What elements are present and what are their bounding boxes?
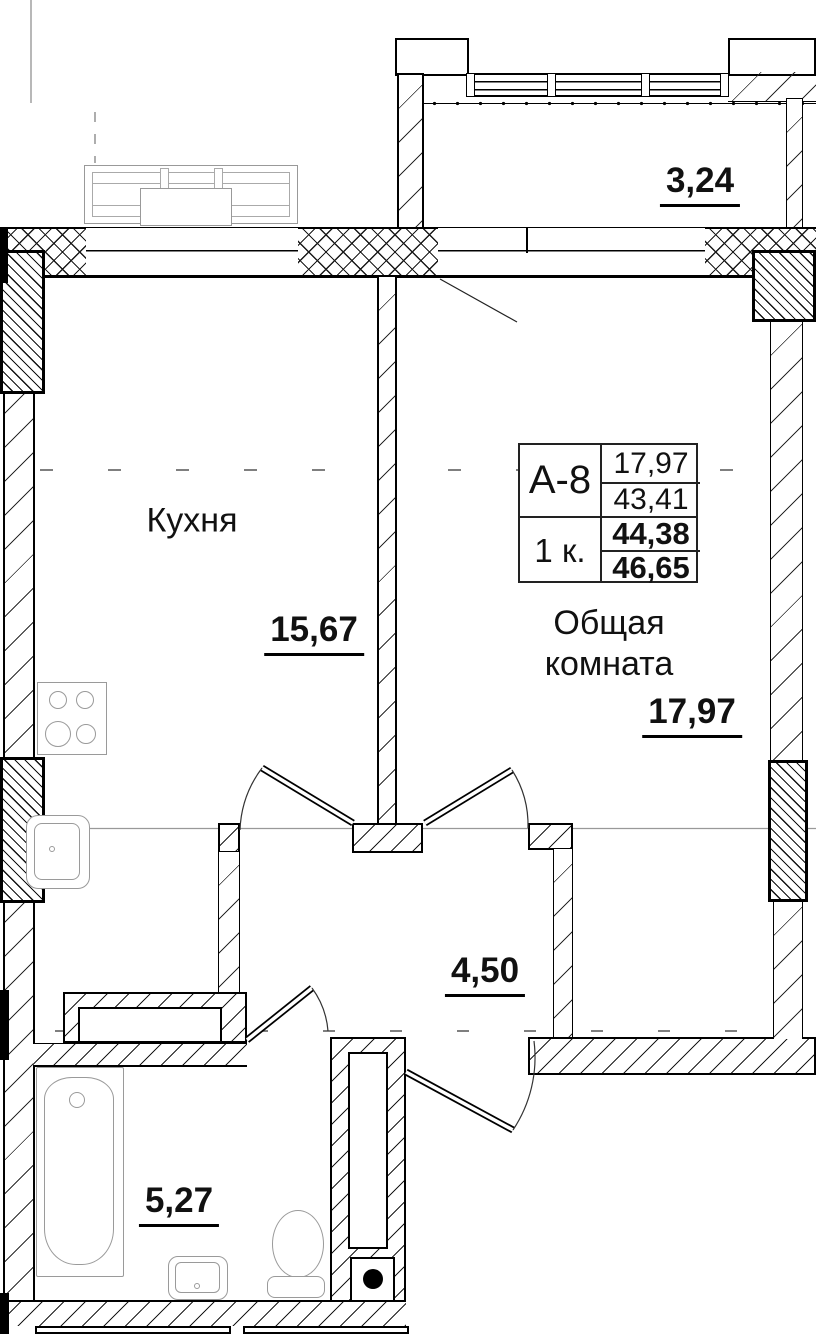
balcony-railing <box>469 73 728 97</box>
living-room-area-label: 17,97 <box>642 692 742 738</box>
wall-right-exterior-upper <box>770 322 803 762</box>
bathroom-area-label: 5,27 <box>139 1181 219 1227</box>
kitchen-sink <box>26 815 90 889</box>
unit-type: 1 к. <box>520 516 600 585</box>
area-value-2: 43,41 <box>602 483 700 516</box>
kitchen-sink-bowl <box>34 823 80 880</box>
balcony-pillar-right <box>728 38 816 76</box>
pier-right-middle <box>768 760 808 902</box>
hallway-area-label: 4,50 <box>445 951 525 997</box>
living-room-door-leaf-inner <box>425 770 512 823</box>
info-table: А-8 1 к. 17,97 43,41 44,38 46,65 <box>518 443 698 583</box>
drain-box <box>350 1257 395 1302</box>
kitchen-label: Кухня <box>147 502 238 541</box>
drain-point-icon <box>363 1269 383 1289</box>
area-value-total: 46,65 <box>602 551 700 584</box>
stove-burner-icon <box>76 724 96 744</box>
hall-top-wall-left-stub <box>218 823 240 853</box>
wall-right-exterior-lower <box>773 902 803 1039</box>
unit-id: А-8 <box>520 445 600 516</box>
living-room-label: Общая комната <box>545 603 674 685</box>
kitchen-area-label: 15,67 <box>264 610 364 656</box>
balcony-glazing-dots <box>423 100 816 107</box>
hall-top-wall-right-stub <box>528 823 573 850</box>
stove-burner-icon <box>49 691 67 709</box>
balcony-door-divider <box>526 227 528 253</box>
stove-burner-icon <box>45 721 71 747</box>
stove-burner-icon <box>76 691 94 709</box>
exterior-element-panel <box>140 188 232 226</box>
wall-niche <box>78 1007 222 1043</box>
entrance-door-leaf <box>406 1072 513 1130</box>
railing-post <box>547 73 556 97</box>
living-room-door-swing-arc <box>512 770 528 828</box>
living-room-label-line2: комната <box>545 644 674 685</box>
bathtub <box>36 1067 124 1277</box>
bathroom-sink-drain-icon <box>194 1283 200 1289</box>
hall-bottom-wall <box>528 1037 816 1075</box>
bathroom-door-swing-arc <box>312 988 328 1031</box>
balcony-area-label: 3,24 <box>660 161 740 207</box>
balcony-pillar-left <box>395 38 469 76</box>
entrance-door-leaf-inner <box>406 1072 513 1130</box>
kitchen-door-leaf-inner <box>262 768 353 823</box>
balcony-door-window <box>438 227 705 278</box>
bathroom-top-wall <box>33 1043 247 1067</box>
kitchen-sink-drain-icon <box>49 846 55 852</box>
bathtub-drain-icon <box>69 1092 85 1108</box>
wall-top-segment-middle <box>298 227 438 278</box>
stove <box>37 682 107 755</box>
kitchen-door-swing-arc <box>240 768 262 830</box>
toilet-bowl <box>272 1210 324 1278</box>
lower-unit-fragment <box>243 1326 409 1334</box>
bathroom-bottom-wall <box>0 1300 406 1326</box>
floor-plan: А-8 1 к. 17,97 43,41 44,38 46,65 Кухня 1… <box>0 0 816 1334</box>
kitchen-window <box>86 227 298 278</box>
pier-right-top <box>752 250 816 322</box>
leader-line <box>440 279 517 322</box>
pier-left-lower <box>0 990 9 1060</box>
balcony-wall-right <box>786 98 803 229</box>
pier-left-corner <box>0 227 8 283</box>
living-room-label-line1: Общая <box>545 603 674 644</box>
bathroom-sink <box>168 1256 228 1300</box>
toilet-tank <box>267 1276 325 1298</box>
pier-left-bottom <box>0 1293 9 1334</box>
area-value-3: 44,38 <box>602 517 700 551</box>
bathroom-door-leaf <box>247 988 312 1040</box>
kitchen-door-leaf <box>262 768 353 823</box>
hall-right-wall <box>553 848 573 1040</box>
railing-post <box>641 73 650 97</box>
bathroom-door-leaf-inner <box>247 988 312 1040</box>
living-room-door-leaf <box>425 770 512 823</box>
lower-unit-fragment <box>35 1326 231 1334</box>
hall-left-wall <box>218 851 240 993</box>
hall-top-wall-middle-stub <box>352 823 423 853</box>
railing-post <box>466 73 475 97</box>
area-value-living: 17,97 <box>602 445 700 483</box>
balcony-wall-left <box>397 73 424 229</box>
shaft-duct <box>348 1052 388 1249</box>
partition-kitchen-living <box>377 277 397 825</box>
